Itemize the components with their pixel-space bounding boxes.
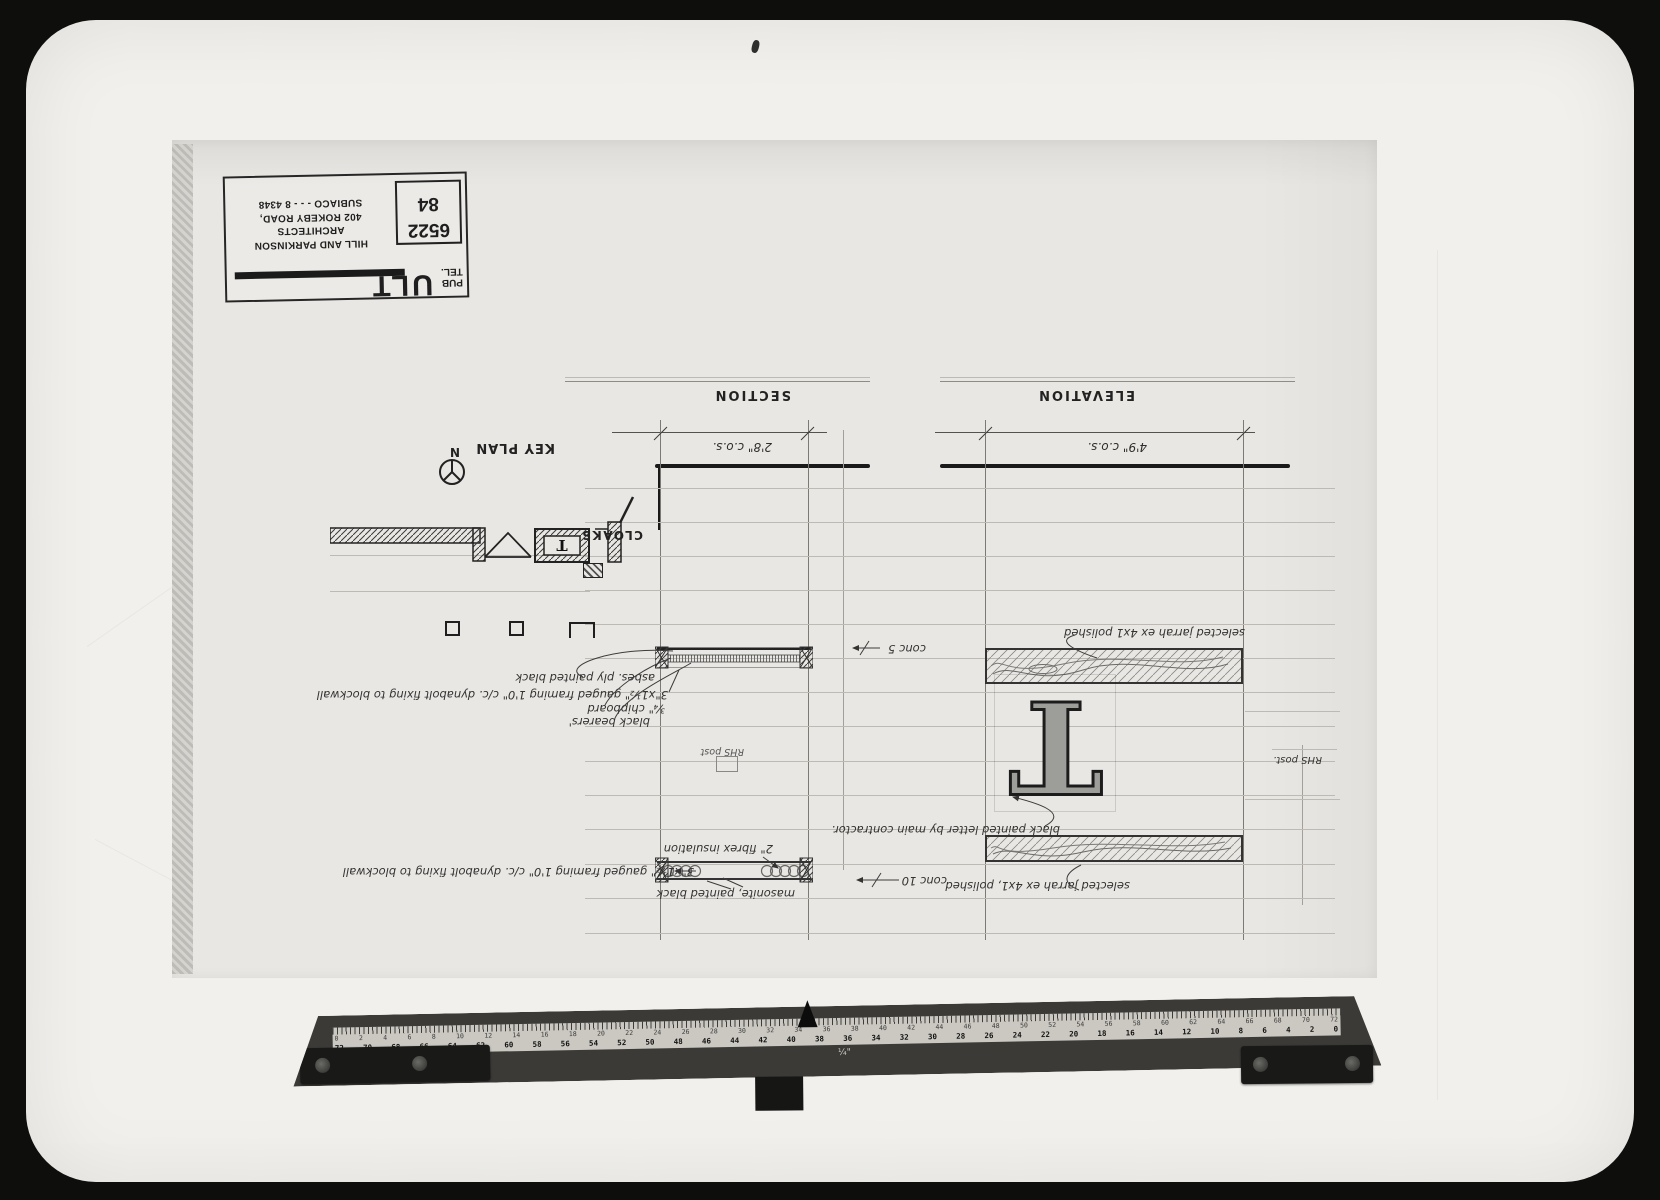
ruler-scale-label: ¼": [838, 1048, 851, 1058]
ruler-number: 14: [1154, 1028, 1163, 1037]
ruler-number: 46: [702, 1036, 711, 1045]
screw-icon: [1345, 1056, 1360, 1071]
ruler-number: 28: [956, 1032, 965, 1041]
ruler-number: 10: [1210, 1027, 1219, 1036]
ruler-pointer-icon: [797, 1000, 817, 1027]
leader-lines: [172, 140, 1377, 978]
ruler-number: 44: [730, 1036, 739, 1045]
ruler-number: 36: [823, 1025, 831, 1033]
ruler-number: 22: [1041, 1030, 1050, 1039]
ruler-number: 52: [617, 1038, 626, 1047]
ruler-number: 50: [645, 1038, 654, 1047]
ruler-number: 18: [1097, 1029, 1106, 1038]
ruler-number: 0: [1333, 1024, 1338, 1033]
ruler-number: 68: [1274, 1016, 1282, 1024]
ruler-number: 14: [512, 1031, 520, 1039]
ruler-number: 60: [1161, 1019, 1169, 1027]
ruler-number: 26: [984, 1031, 993, 1040]
ruler-number: 40: [879, 1024, 887, 1032]
ruler-number: 16: [541, 1031, 549, 1039]
ruler-number: 24: [653, 1028, 661, 1036]
ruler-number: 60: [504, 1040, 513, 1049]
ruler-number: 24: [1013, 1030, 1022, 1039]
ruler-body: 0246810121416182022242628303234363840424…: [292, 996, 1381, 1087]
ruler-number: 58: [1133, 1019, 1141, 1027]
ruler-center-tab: [755, 1076, 803, 1110]
ruler-number: 30: [738, 1027, 746, 1035]
drawing: PUB TEL. ULT 6522 84 HILL AND PARKINSON …: [172, 140, 1377, 978]
ruler-number: 36: [843, 1034, 852, 1043]
ruler-number: 4: [1286, 1025, 1291, 1034]
ruler-number: 32: [766, 1026, 774, 1034]
ruler-number: 42: [907, 1023, 915, 1031]
ruler-number: 52: [1048, 1021, 1056, 1029]
ruler-number: 22: [625, 1029, 633, 1037]
ruler-number: 42: [758, 1035, 767, 1044]
ruler-number: 2: [359, 1034, 363, 1042]
ruler-number: 20: [597, 1029, 605, 1037]
ruler-number: 18: [569, 1030, 577, 1038]
ruler-number: 10: [456, 1032, 464, 1040]
screw-icon: [1253, 1057, 1268, 1072]
ruler-number: 16: [1126, 1028, 1135, 1037]
ruler-number: 6: [407, 1033, 411, 1041]
ruler-number: 26: [682, 1028, 690, 1036]
ruler-number: 32: [900, 1033, 909, 1042]
ruler-number: 6: [1262, 1026, 1267, 1035]
scale-ruler: 0246810121416182022242628303234363840424…: [292, 1001, 1381, 1131]
ruler-number: 72: [1330, 1015, 1338, 1023]
ruler-number: 66: [1246, 1017, 1254, 1025]
ruler-number: 58: [532, 1040, 541, 1049]
ruler-number: 4: [383, 1034, 387, 1042]
ruler-number: 46: [964, 1022, 972, 1030]
paper-crease: [1437, 250, 1438, 1100]
screw-icon: [315, 1058, 330, 1073]
ruler-clamp-left: [300, 1045, 491, 1085]
ruler-number: 56: [561, 1039, 570, 1048]
tracing-sheet: PUB TEL. ULT 6522 84 HILL AND PARKINSON …: [172, 140, 1377, 978]
ruler-number: 44: [935, 1023, 943, 1031]
ruler-number: 62: [1189, 1018, 1197, 1026]
ruler-number: 28: [710, 1027, 718, 1035]
ruler-number: 0: [335, 1035, 339, 1043]
ruler-number: 38: [851, 1025, 859, 1033]
ruler-number: 8: [432, 1033, 436, 1041]
ruler-number: 48: [674, 1037, 683, 1046]
ruler-number: 12: [484, 1032, 492, 1040]
ruler-number: 20: [1069, 1029, 1078, 1038]
ruler-number: 48: [992, 1022, 1000, 1030]
ruler-number: 30: [928, 1032, 937, 1041]
ruler-number: 64: [1217, 1018, 1225, 1026]
ruler-number: 2: [1310, 1025, 1315, 1034]
ruler-number: 38: [815, 1034, 824, 1043]
ruler-number: 50: [1020, 1021, 1028, 1029]
ruler-number: 56: [1105, 1020, 1113, 1028]
ruler-number: 54: [589, 1039, 598, 1048]
photo-frame: PUB TEL. ULT 6522 84 HILL AND PARKINSON …: [0, 0, 1660, 1200]
ruler-number: 12: [1182, 1027, 1191, 1036]
ruler-number: 8: [1239, 1026, 1244, 1035]
ruler-number: 40: [787, 1035, 796, 1044]
ruler-clamp-right: [1241, 1045, 1373, 1084]
ruler-number: 70: [1302, 1016, 1310, 1024]
screw-icon: [412, 1056, 427, 1071]
ruler-number: 54: [1076, 1020, 1084, 1028]
ruler-number: 34: [871, 1033, 880, 1042]
